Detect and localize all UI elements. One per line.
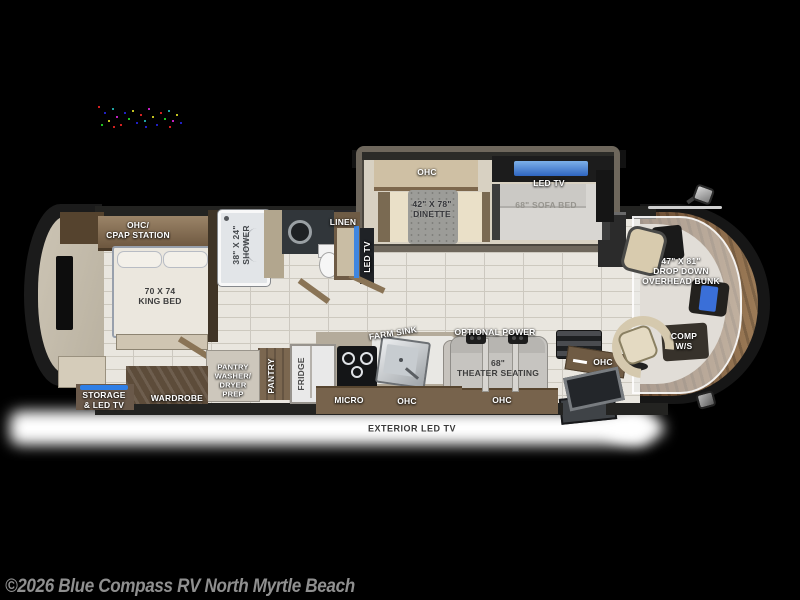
label-theater-seating: 68" THEATER SEATING xyxy=(457,358,539,378)
label-shower: 38" X 24" SHOWER xyxy=(231,225,251,264)
burner-icon xyxy=(360,352,373,365)
label-storage-led-tv: STORAGE & LED TV xyxy=(82,390,125,410)
front-cap-trim xyxy=(648,206,722,209)
label-wardrobe: WARDROBE xyxy=(151,393,203,403)
label-led-tv-wall: LED TV xyxy=(362,241,372,272)
rear-wall-tv xyxy=(56,256,73,330)
label-overhead-bunk: 47" X 81" DROP DOWN OVERHEAD BUNK xyxy=(642,256,720,286)
bottom-wall-front xyxy=(606,403,668,415)
linen-cabinet-interior xyxy=(337,228,354,276)
bed-pillow-right xyxy=(163,251,208,268)
label-sofa-led-tv: LED TV xyxy=(533,178,564,188)
sofa-led-tv-screen xyxy=(514,161,588,176)
underbody-glow xyxy=(10,411,650,445)
burner-icon xyxy=(342,352,355,365)
dash-screen xyxy=(699,285,719,312)
label-comp-ws: COMP W/S xyxy=(671,331,697,351)
label-ohc-cpap-station: OHC/ CPAP STATION xyxy=(106,220,170,240)
label-kitchen-ohc: OHC xyxy=(397,396,417,406)
label-entry-ohc: OHC xyxy=(593,357,613,367)
label-pantry: PANTRY xyxy=(266,358,276,393)
label-fridge: FRIDGE xyxy=(296,357,306,390)
linen-led-strip xyxy=(354,226,359,278)
label-linen: LINEN xyxy=(330,217,357,227)
model-number-artifact xyxy=(98,106,100,108)
side-mirror-icon xyxy=(695,390,717,410)
rv-floorplan-image: OHC/ CPAP STATION 70 X 74 KING BED 38" X… xyxy=(0,0,800,600)
label-micro: MICRO xyxy=(334,395,363,405)
dinette-bench-right xyxy=(456,192,490,242)
label-theater-ohc: OHC xyxy=(492,395,512,405)
shower-head xyxy=(224,216,229,221)
label-dinette-ohc: OHC xyxy=(417,167,437,177)
label-sofa-bed: 68" SOFA BED xyxy=(515,200,576,210)
label-king-bed: 70 X 74 KING BED xyxy=(138,286,181,306)
sink-drain xyxy=(399,358,403,362)
side-mirror-icon xyxy=(692,183,716,205)
burner-icon xyxy=(351,366,363,378)
bed-pillow-left xyxy=(117,251,162,268)
bath-sink xyxy=(288,220,312,244)
refrigerator-door-seam xyxy=(310,346,312,398)
label-dinette: 42" X 78" DINETTE xyxy=(412,199,451,219)
label-optional-power: OPTIONAL POWER xyxy=(454,327,535,337)
label-pantry-washer-dryer: PANTRY WASHER/ DRYER PREP xyxy=(215,363,251,398)
slideout-window xyxy=(596,170,614,222)
bedroom-divider-wall xyxy=(208,210,218,342)
label-exterior-led-tv: EXTERIOR LED TV xyxy=(368,424,456,435)
dealer-copyright: ©2026 Blue Compass RV North Myrtle Beach xyxy=(5,577,355,598)
